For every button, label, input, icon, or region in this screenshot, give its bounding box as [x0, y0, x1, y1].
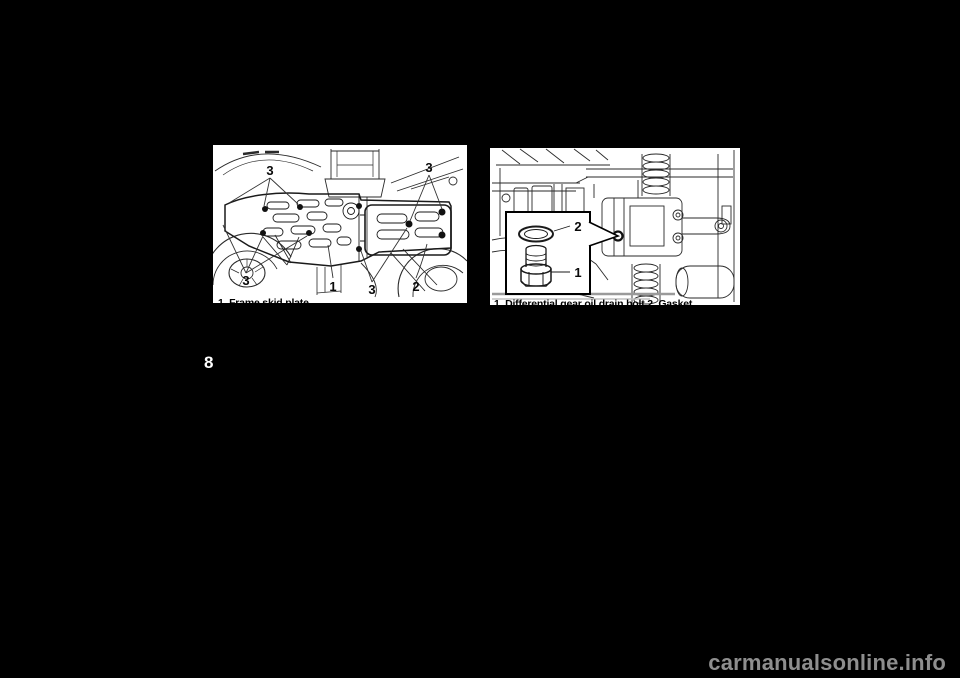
- drain-bolt-illustration: 2 1: [490, 148, 740, 305]
- manual-page: 3 3 3 1 3 2 1. Frame skid plate: [0, 0, 960, 678]
- callout-2-gasket: 2: [574, 219, 581, 234]
- figure-caption-skid-plates: 1. Frame skid plate: [218, 297, 309, 303]
- bolt-dots: [260, 203, 446, 252]
- figure-caption-drain-bolt: 1. Differential gear oil drain bolt 2. G…: [494, 298, 692, 305]
- figure-drain-bolt: 2 1 1. Differential gear oil drain bolt …: [490, 148, 740, 305]
- callout-3-bottom-center: 3: [368, 282, 375, 297]
- callout-3-top-right: 3: [425, 160, 432, 175]
- watermark-text: carmanualsonline.info: [708, 650, 946, 676]
- callout-3-top-left: 3: [266, 163, 273, 178]
- callout-1-frame-skid-plate: 1: [329, 279, 336, 294]
- figure-skid-plates: 3 3 3 1 3 2 1. Frame skid plate: [213, 145, 467, 303]
- callout-3-bottom-left: 3: [242, 273, 249, 288]
- skid-plate-illustration: 3 3 3 1 3 2: [213, 145, 467, 303]
- callout-2-rear-skid-plate: 2: [412, 279, 419, 294]
- chapter-number: 8: [204, 353, 213, 373]
- callout-1-drain-bolt: 1: [574, 265, 581, 280]
- inset-callout-box: [506, 212, 618, 294]
